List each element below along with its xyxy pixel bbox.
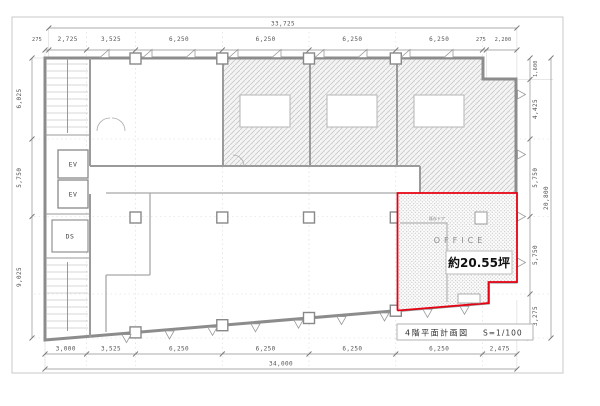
dim-bottom-0: 3,000 (56, 346, 76, 353)
floor-plan-drawing: EV EV DS (0, 0, 600, 406)
dim-bottom-6: 2,475 (490, 346, 510, 353)
dim-bottom-total: 34,000 (269, 361, 293, 368)
dim-bottom-3: 6,250 (256, 346, 276, 353)
drawing-scale: S=1/100 (483, 329, 523, 338)
dim-top-5: 6,250 (342, 36, 362, 43)
dim-bottom-1: 3,525 (101, 346, 121, 353)
dim-left-0: 6,025 (16, 88, 23, 108)
dim-top-3: 6,250 (169, 36, 189, 43)
dim-top-7: 275 (476, 37, 486, 43)
drawing-title: 4階平面計画図 (405, 328, 469, 338)
skylight-openings (240, 95, 464, 127)
dim-right-4: 3,275 (532, 306, 539, 326)
office-inner-column (475, 212, 487, 224)
title-block: 4階平面計画図 S=1/100 (397, 324, 533, 340)
floor-plan-sheet: EV EV DS (0, 0, 600, 406)
dim-top-total: 33,725 (271, 21, 295, 28)
dim-right-1: 4,425 (532, 99, 539, 119)
elevator-1-label: EV (69, 161, 78, 169)
dim-right-2: 5,750 (532, 168, 539, 188)
highlighted-office-unit: 既存ドア OFFICE 約20.55坪 (398, 193, 518, 311)
elevator-2-label: EV (69, 191, 78, 199)
dim-right-0: 1,600 (533, 60, 539, 77)
dim-right-3: 5,750 (532, 245, 539, 265)
area-label: 約20.55坪 (448, 255, 510, 270)
dim-left-1: 5,750 (16, 168, 23, 188)
dim-bottom-5: 6,250 (429, 346, 449, 353)
dim-top-4: 6,250 (256, 36, 276, 43)
dim-top-8: 2,200 (495, 37, 512, 43)
dim-top-0: 275 (32, 37, 42, 43)
office-label: OFFICE (434, 236, 487, 245)
dim-right-total: 20,800 (543, 186, 550, 210)
dim-top-2: 3,525 (101, 36, 121, 43)
dim-top-1: 2,725 (58, 36, 78, 43)
door-note: 既存ドア (429, 215, 445, 221)
dim-top-6: 6,250 (429, 36, 449, 43)
door-swing-arcs (97, 118, 244, 166)
duct-label: DS (66, 233, 75, 241)
dim-bottom-2: 6,250 (169, 346, 189, 353)
dim-bottom-4: 6,250 (342, 346, 362, 353)
office-inner-fixture (458, 294, 480, 303)
stair-core: EV EV DS (45, 58, 244, 331)
window-markers-right (518, 90, 526, 267)
dim-left-2: 9,025 (16, 267, 23, 287)
partition-walls (106, 193, 397, 332)
